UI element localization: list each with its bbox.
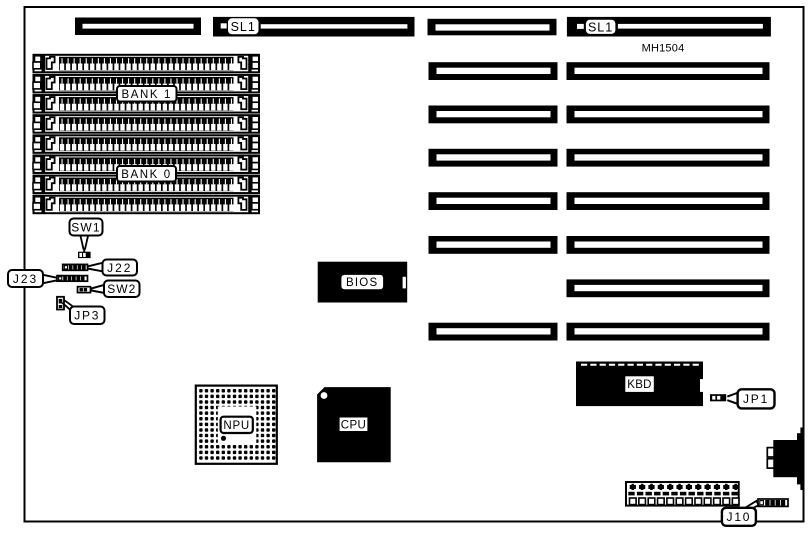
svg-text:JP3: JP3 [74, 309, 100, 323]
svg-text:BANK 0: BANK 0 [121, 169, 172, 181]
svg-text:SL1: SL1 [231, 20, 256, 34]
svg-text:SW2: SW2 [107, 282, 136, 296]
svg-text:MH1504: MH1504 [642, 42, 685, 54]
svg-text:J22: J22 [107, 261, 132, 275]
svg-text:BANK 1: BANK 1 [121, 89, 172, 101]
svg-text:NPU: NPU [223, 420, 250, 432]
svg-text:SW1: SW1 [71, 220, 101, 234]
svg-text:JP1: JP1 [743, 392, 769, 406]
svg-text:SL1: SL1 [588, 20, 613, 34]
svg-text:BIOS: BIOS [346, 277, 378, 289]
svg-text:KBD: KBD [627, 379, 652, 391]
svg-text:J10: J10 [727, 510, 752, 524]
svg-text:J23: J23 [13, 272, 38, 286]
svg-text:CPU: CPU [341, 419, 366, 431]
